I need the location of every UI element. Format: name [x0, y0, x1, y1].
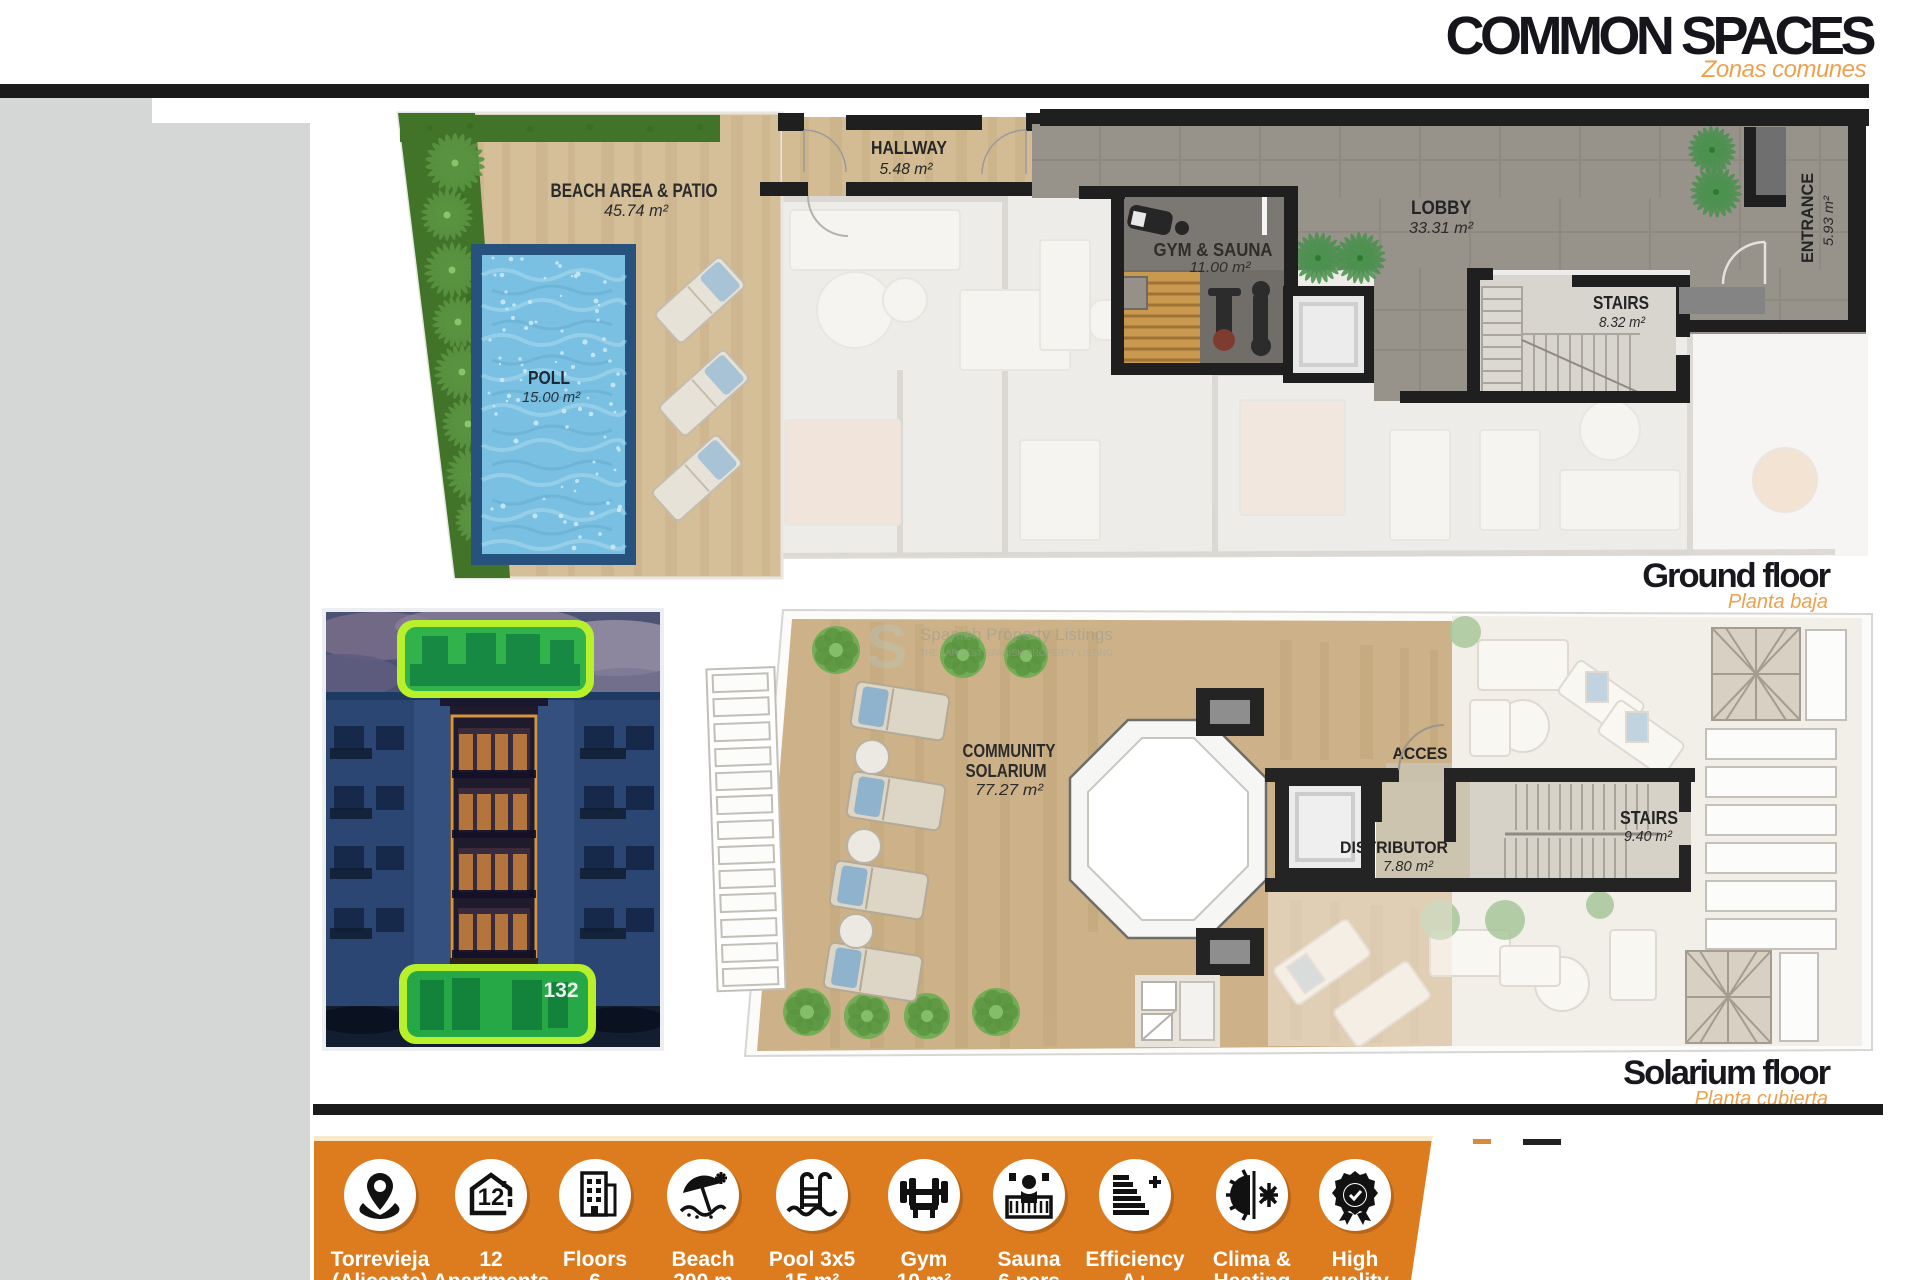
- svg-text:Clima &: Clima &: [1213, 1248, 1291, 1271]
- svg-text:GYM & SAUNA: GYM & SAUNA: [1154, 240, 1273, 260]
- svg-text:quality: quality: [1321, 1270, 1389, 1280]
- svg-text:5.93 m²: 5.93 m²: [1820, 195, 1836, 246]
- svg-text:Beach: Beach: [671, 1248, 734, 1271]
- svg-text:15 m²: 15 m²: [785, 1270, 840, 1280]
- svg-text:BEACH AREA & PATIO: BEACH AREA & PATIO: [551, 181, 718, 202]
- svg-text:(Alicante): (Alicante): [332, 1270, 428, 1280]
- svg-text:Ground floor: Ground floor: [1642, 557, 1830, 595]
- svg-text:9.40 m²: 9.40 m²: [1624, 828, 1673, 845]
- svg-text:Heating: Heating: [1213, 1270, 1290, 1280]
- svg-text:7.80 m²: 7.80 m²: [1383, 858, 1434, 875]
- svg-text:200 m: 200 m: [673, 1270, 733, 1280]
- svg-text:6: 6: [589, 1270, 601, 1280]
- svg-text:A+: A+: [1121, 1270, 1148, 1280]
- svg-text:SOLARIUM: SOLARIUM: [966, 761, 1047, 781]
- svg-text:6 pers: 6 pers: [998, 1270, 1060, 1280]
- svg-text:LOBBY: LOBBY: [1411, 198, 1471, 219]
- svg-text:S: S: [866, 613, 907, 682]
- svg-text:12: 12: [478, 1184, 505, 1211]
- svg-text:STAIRS: STAIRS: [1593, 293, 1649, 313]
- svg-text:STAIRS: STAIRS: [1620, 808, 1678, 828]
- svg-text:12: 12: [479, 1248, 502, 1271]
- svg-text:High: High: [1332, 1248, 1379, 1271]
- svg-text:POLL: POLL: [528, 368, 570, 388]
- svg-text:Spanish Property Listings: Spanish Property Listings: [920, 625, 1113, 644]
- svg-text:Efficiency: Efficiency: [1085, 1248, 1185, 1271]
- svg-text:77.27 m²: 77.27 m²: [975, 782, 1044, 799]
- svg-text:COMMUNITY: COMMUNITY: [963, 741, 1056, 761]
- svg-text:15.00 m²: 15.00 m²: [522, 389, 581, 406]
- svg-text:8.32 m²: 8.32 m²: [1599, 314, 1646, 331]
- svg-text:132: 132: [543, 979, 578, 1002]
- svg-text:45.74 m²: 45.74 m²: [604, 201, 669, 220]
- svg-text:Planta baja: Planta baja: [1728, 591, 1828, 613]
- svg-text:11.00 m²: 11.00 m²: [1190, 259, 1252, 276]
- svg-text:Pool 3x5: Pool 3x5: [769, 1248, 856, 1271]
- svg-text:Apartments: Apartments: [433, 1270, 550, 1280]
- svg-text:Torrevieja: Torrevieja: [331, 1248, 430, 1271]
- svg-text:Solarium floor: Solarium floor: [1623, 1054, 1830, 1092]
- svg-text:THE LARGEST SPANISH PROPERTY L: THE LARGEST SPANISH PROPERTY LISTING: [920, 648, 1113, 658]
- svg-text:Sauna: Sauna: [997, 1248, 1060, 1271]
- svg-text:Floors: Floors: [563, 1248, 627, 1271]
- svg-text:Gym: Gym: [901, 1248, 948, 1271]
- svg-text:33.31 m²: 33.31 m²: [1409, 220, 1474, 237]
- svg-text:5.48 m²: 5.48 m²: [880, 161, 934, 178]
- svg-text:10 m²: 10 m²: [897, 1270, 952, 1280]
- svg-text:ENTRANCE: ENTRANCE: [1798, 173, 1817, 263]
- svg-text:HALLWAY: HALLWAY: [871, 138, 947, 158]
- svg-text:Zonas comunes: Zonas comunes: [1701, 56, 1867, 83]
- svg-text:DISTRIBUTOR: DISTRIBUTOR: [1340, 838, 1448, 857]
